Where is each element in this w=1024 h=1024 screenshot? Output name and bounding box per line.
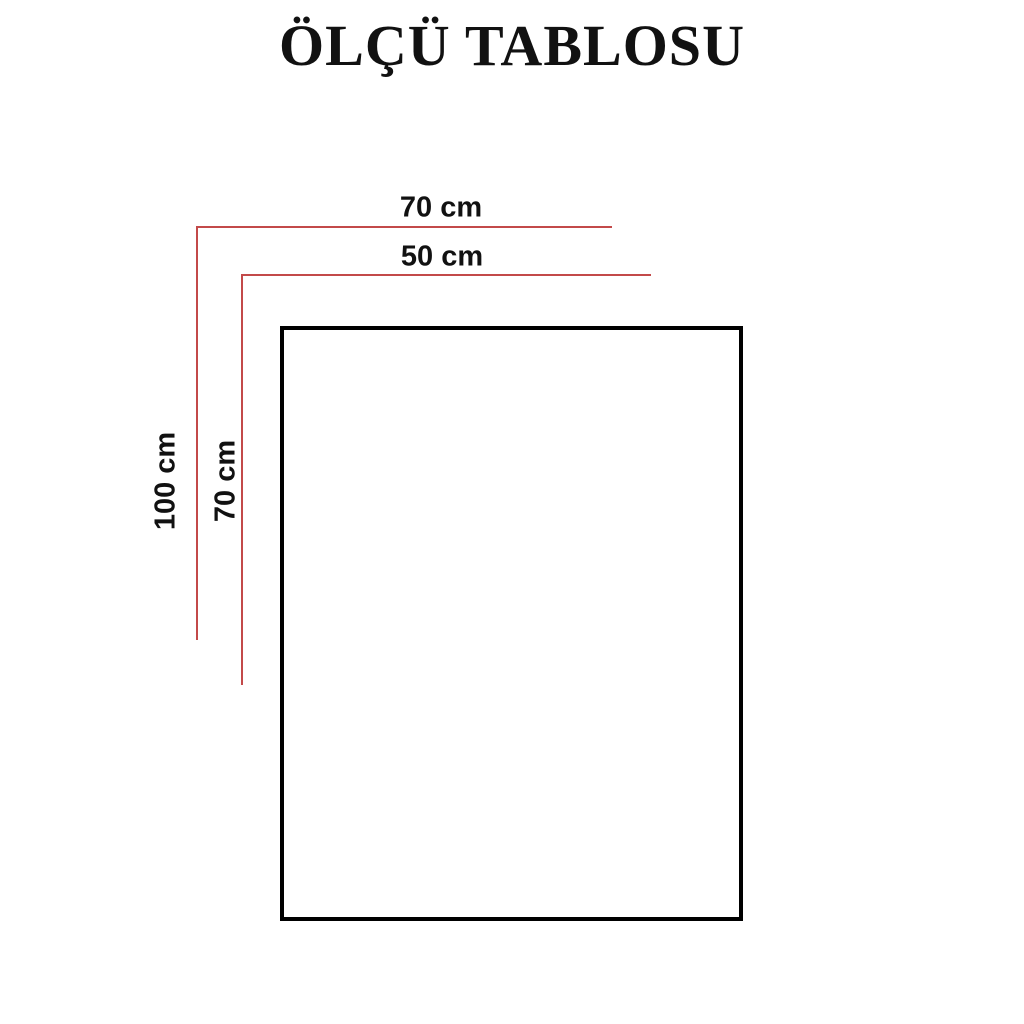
inner-width-dimension-line xyxy=(242,274,651,276)
outer-height-dimension-line xyxy=(196,226,198,640)
page-title: ÖLÇÜ TABLOSU xyxy=(0,12,1024,79)
size-chart-diagram: ÖLÇÜ TABLOSU 70 cm 50 cm 100 cm 70 cm xyxy=(0,0,1024,1024)
inner-height-dimension-line xyxy=(241,274,243,685)
outer-height-label: 100 cm xyxy=(150,432,183,530)
product-outline-rectangle xyxy=(280,326,743,921)
outer-width-label: 70 cm xyxy=(400,192,482,225)
inner-width-label: 50 cm xyxy=(401,241,483,274)
outer-width-dimension-line xyxy=(197,226,612,228)
inner-height-label: 70 cm xyxy=(210,440,243,522)
